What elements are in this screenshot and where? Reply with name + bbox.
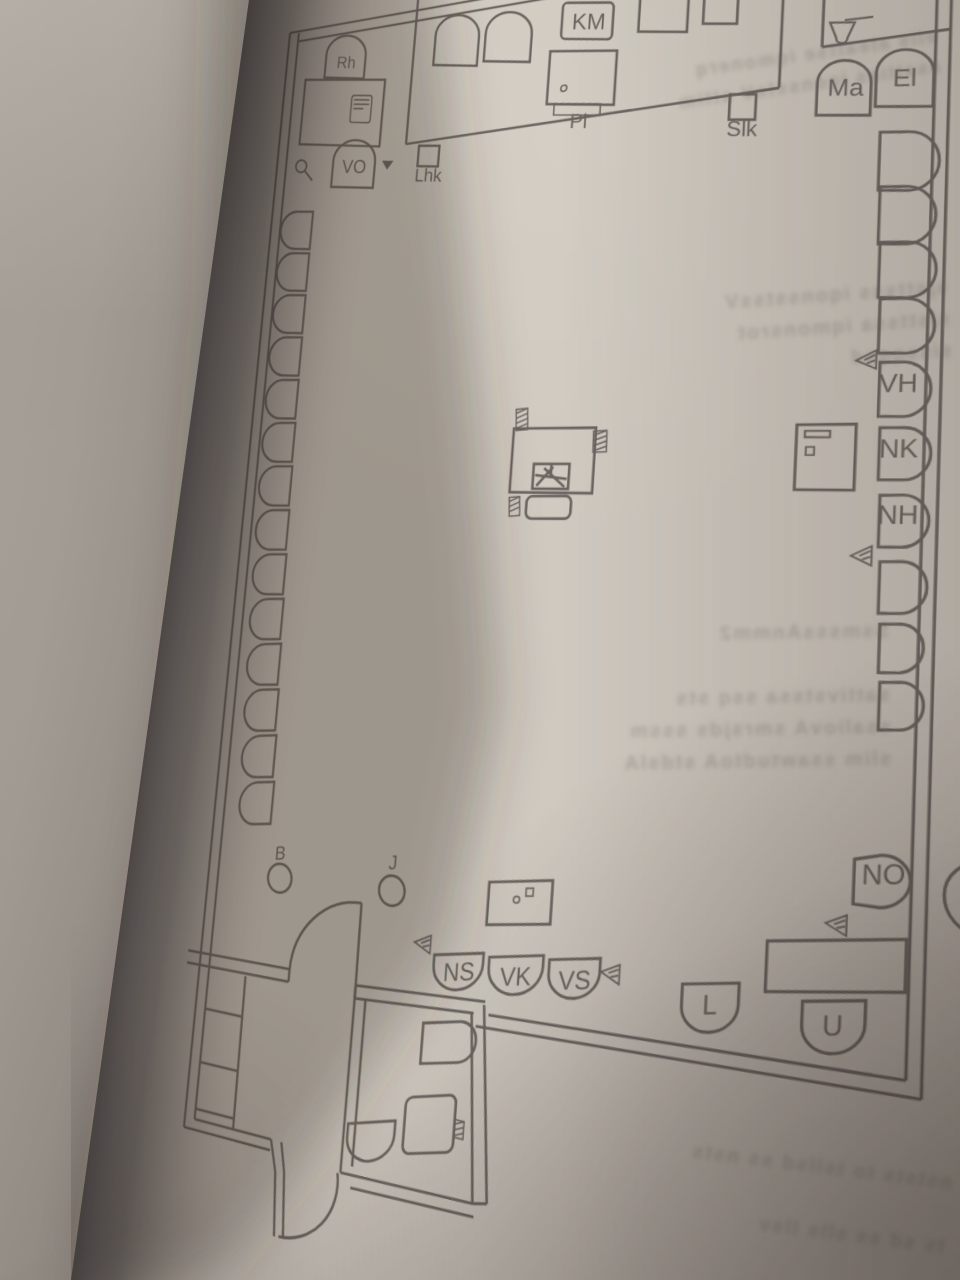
svg-text:VS: VS (557, 964, 592, 995)
svg-text:Rh: Rh (336, 54, 357, 73)
svg-text:El: El (892, 63, 917, 92)
svg-text:KM: KM (571, 9, 606, 34)
svg-text:Ma: Ma (827, 73, 865, 101)
svg-text:VK: VK (499, 961, 532, 992)
svg-text:Pl: Pl (569, 111, 588, 133)
svg-text:NH: NH (877, 499, 919, 530)
svg-text:J: J (388, 852, 399, 875)
svg-text:VH: VH (879, 368, 919, 398)
svg-text:VO: VO (341, 157, 367, 177)
svg-text:L: L (702, 988, 718, 1020)
svg-text:B: B (274, 843, 287, 865)
svg-text:NK: NK (879, 433, 920, 463)
svg-text:NO: NO (861, 859, 906, 891)
svg-text:Lhk: Lhk (414, 166, 443, 187)
svg-text:NS: NS (442, 956, 475, 986)
svg-text:Slk: Slk (726, 118, 758, 141)
svg-text:U: U (822, 1008, 844, 1042)
